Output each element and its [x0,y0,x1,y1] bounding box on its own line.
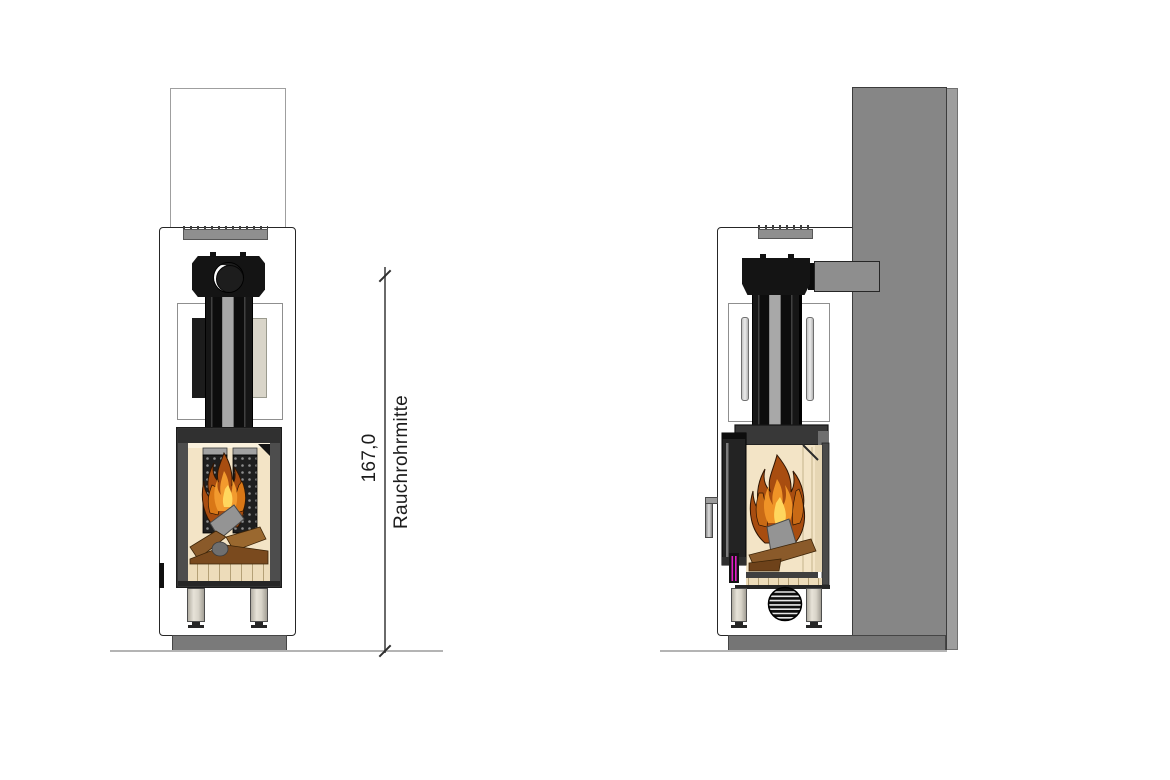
leg-side-right [806,588,822,622]
smoke-pipe-to-wall [814,261,880,292]
chimney-wall [852,87,947,652]
firebox-plinth-side [746,578,822,586]
smoke-pipe-outlet-icon [213,262,244,293]
vent-slot-left [741,317,749,401]
leg-side-left [731,588,747,622]
flue-pipes-front [205,294,253,430]
floor-line-right [660,650,947,652]
foot-front-left [188,625,204,628]
door-profile-side [722,433,746,565]
door-handle-bar [705,503,713,538]
air-intake-hose-icon [767,586,803,622]
leg-front-right [250,588,268,622]
flue-box-nub-left-side [760,254,766,259]
top-plate-front [183,229,268,240]
side-handle-front [159,563,164,588]
foot-side-right [806,625,822,628]
flue-collar-box-side [742,258,810,295]
dimension-value: 167,0 [359,433,381,482]
chimney-wall-return [946,88,958,650]
glass-hood-outline [170,88,286,229]
flue-box-nub-right [240,252,246,257]
foot-front-right [251,625,267,628]
firebox-floor-sill [746,572,818,578]
technical-drawing-canvas: 167,0 Rauchrohrmitte [0,0,1170,780]
heat-slab-tan [252,318,267,398]
top-plate-side [758,229,813,239]
firebox-side [719,423,830,589]
foot-side-left [731,625,747,628]
dimension-line [384,267,386,653]
leg-front-left [187,588,205,622]
floor-line-left [110,650,443,652]
dimension-label: Rauchrohrmitte [391,395,413,529]
vent-slot-right [806,317,814,401]
flue-pipes-side [752,293,802,426]
ash-module-magenta [729,553,739,583]
flue-box-nub-left [210,252,216,257]
firebox-front [176,427,282,588]
flue-box-nub-right-side [788,254,794,259]
